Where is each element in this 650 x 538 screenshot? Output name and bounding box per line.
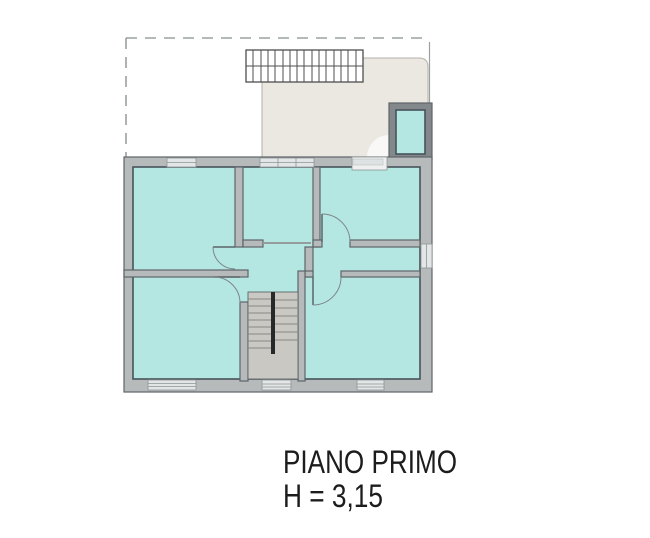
- window-bottom-middle: [262, 380, 291, 390]
- window-bottom-right: [357, 380, 384, 390]
- floor-title: PIANO PRIMO: [283, 444, 457, 480]
- window-bottom-left: [148, 380, 196, 390]
- stair-railing: [271, 292, 275, 354]
- floor-height-label: H = 3,15: [283, 478, 383, 514]
- pergola-strip: [246, 50, 363, 82]
- window-right: [421, 244, 432, 268]
- terrace-door: [352, 157, 387, 170]
- window-top-left: [167, 158, 196, 167]
- staircase: [248, 292, 298, 379]
- floor-plan-drawing: PIANO PRIMO H = 3,15: [0, 0, 650, 538]
- window-top-middle: [260, 158, 314, 167]
- floor-plan-canvas: PIANO PRIMO H = 3,15: [0, 0, 650, 538]
- small-room: [389, 103, 432, 160]
